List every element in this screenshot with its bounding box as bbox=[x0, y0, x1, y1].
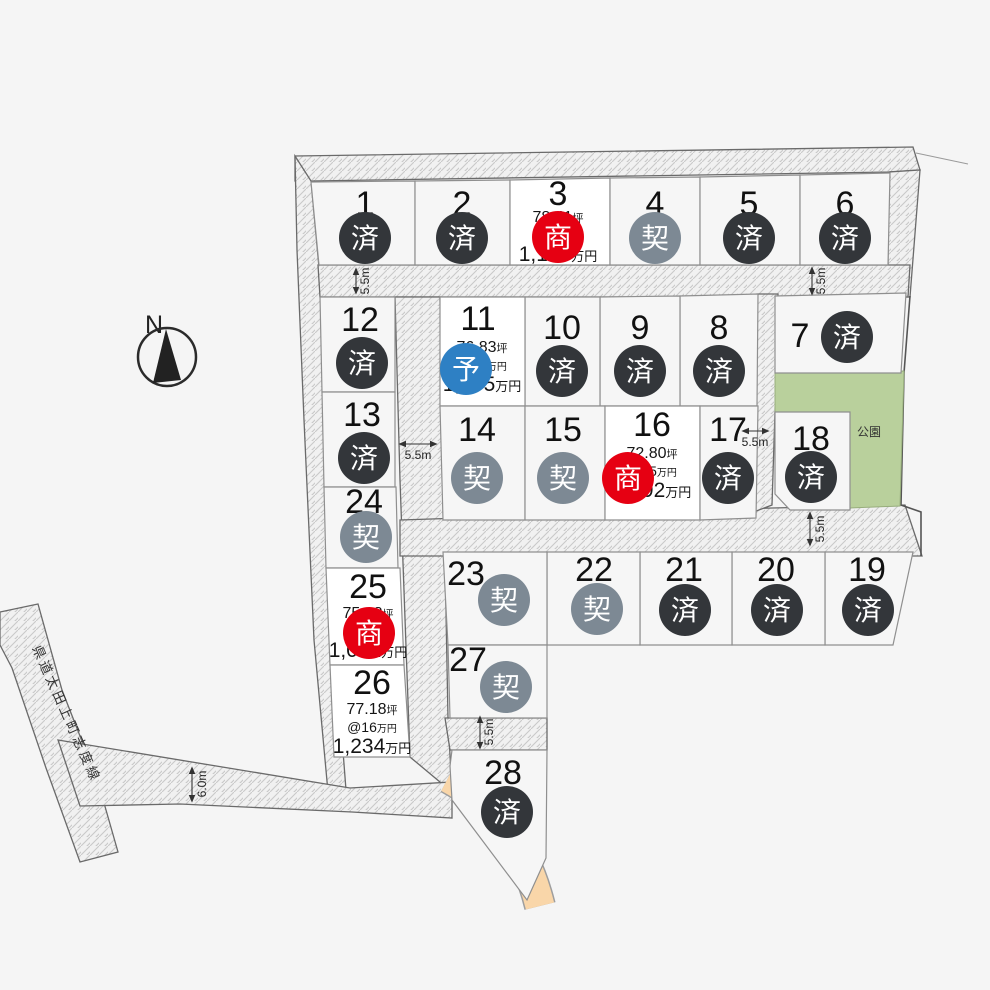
dim-label-below-18: 5.5m bbox=[813, 516, 827, 543]
lot-3[interactable]: 378.41坪@15万円1,176万円商 bbox=[510, 175, 610, 266]
lot-number: 25 bbox=[349, 568, 387, 606]
lot-number: 13 bbox=[343, 396, 381, 434]
status-badge-glyph: 契 bbox=[352, 522, 380, 553]
lot-number: 8 bbox=[710, 309, 729, 347]
status-badge-glyph: 契 bbox=[490, 585, 518, 616]
lot-28[interactable]: 28済 bbox=[450, 750, 547, 900]
lot-number: 23 bbox=[447, 555, 485, 593]
lot-number: 16 bbox=[633, 406, 671, 444]
lot-number: 28 bbox=[484, 754, 522, 792]
status-badge-glyph: 契 bbox=[641, 223, 669, 254]
lot-number: 12 bbox=[341, 301, 379, 339]
lot-number: 27 bbox=[449, 641, 487, 679]
lot-number: 14 bbox=[458, 411, 496, 449]
stray-line bbox=[916, 153, 968, 164]
road-between-27-28 bbox=[445, 718, 547, 750]
status-badge-glyph: 済 bbox=[735, 223, 763, 254]
lot-number: 9 bbox=[631, 309, 650, 347]
lot-26[interactable]: 2677.18坪@16万円1,234万円 bbox=[330, 664, 411, 758]
dim-label-27-28: 5.5m bbox=[482, 719, 496, 746]
lot-19[interactable]: 19済 bbox=[825, 551, 913, 645]
road-prefectural bbox=[0, 604, 118, 862]
status-badge-glyph: 済 bbox=[350, 443, 378, 474]
lot-number: 19 bbox=[848, 551, 886, 589]
lot-4[interactable]: 4契 bbox=[610, 177, 700, 265]
status-badge-glyph: 済 bbox=[548, 356, 576, 387]
site-plan-svg: 公園 1済 2済 378.41坪@15万円1,176万円商 4契 5済 6済 7… bbox=[0, 0, 990, 990]
status-badge-glyph: 予 bbox=[452, 354, 480, 385]
lot-10[interactable]: 10済 bbox=[525, 297, 600, 406]
status-badge-glyph: 済 bbox=[854, 595, 882, 626]
status-badge-glyph: 済 bbox=[833, 322, 861, 353]
lot-15[interactable]: 15契 bbox=[525, 406, 605, 520]
compass: N bbox=[138, 311, 196, 386]
status-badge-glyph: 商 bbox=[544, 222, 572, 253]
lot-23[interactable]: 23契 bbox=[443, 552, 547, 645]
lot-17[interactable]: 17済 bbox=[700, 406, 758, 520]
lot-number: 26 bbox=[353, 664, 391, 702]
status-badge-glyph: 契 bbox=[492, 672, 520, 703]
status-badge-glyph: 契 bbox=[549, 463, 577, 494]
lot-22[interactable]: 22契 bbox=[547, 551, 640, 645]
status-badge-glyph: 契 bbox=[463, 463, 491, 494]
lot-11[interactable]: 1176.83坪@14万円1,075万円予 bbox=[440, 297, 525, 406]
lot-8[interactable]: 8済 bbox=[680, 294, 758, 406]
lot-1[interactable]: 1済 bbox=[311, 181, 415, 265]
dim-label-mid-left: 5.5m bbox=[405, 448, 432, 462]
lot-number: 7 bbox=[791, 317, 810, 355]
lot-number: 11 bbox=[460, 300, 495, 338]
lot-number: 15 bbox=[544, 411, 582, 449]
lot-20[interactable]: 20済 bbox=[732, 551, 825, 645]
lot-number: 10 bbox=[543, 309, 581, 347]
lot-5[interactable]: 5済 bbox=[700, 175, 800, 265]
status-badge-glyph: 契 bbox=[583, 594, 611, 625]
status-badge-glyph: 済 bbox=[351, 223, 379, 254]
lot-2[interactable]: 2済 bbox=[415, 180, 510, 265]
lot-6[interactable]: 6済 bbox=[800, 173, 890, 265]
lot-21[interactable]: 21済 bbox=[640, 551, 732, 645]
lot-9[interactable]: 9済 bbox=[600, 296, 680, 406]
lot-25[interactable]: 2575.18坪@14万円1,052万円商 bbox=[326, 568, 407, 665]
lot-12[interactable]: 12済 bbox=[320, 297, 395, 392]
status-badge-glyph: 済 bbox=[705, 356, 733, 387]
lot-number: 3 bbox=[549, 175, 568, 213]
site-plan-map: 公園 1済 2済 378.41坪@15万円1,176万円商 4契 5済 6済 7… bbox=[0, 0, 990, 990]
status-badge-glyph: 済 bbox=[626, 356, 654, 387]
status-badge-glyph: 済 bbox=[493, 797, 521, 828]
status-badge-glyph: 済 bbox=[714, 463, 742, 494]
lot-16[interactable]: 1672.80坪@15万円1,092万円商 bbox=[602, 406, 700, 520]
status-badge-glyph: 済 bbox=[671, 595, 699, 626]
lot-14[interactable]: 14契 bbox=[440, 406, 525, 520]
dim-label-bottom-road: 6.0m bbox=[195, 771, 209, 798]
status-badge-glyph: 済 bbox=[448, 223, 476, 254]
status-badge-glyph: 商 bbox=[355, 618, 383, 649]
status-badge-glyph: 商 bbox=[614, 463, 642, 494]
status-badge-glyph: 済 bbox=[797, 462, 825, 493]
lot-7[interactable]: 7済 bbox=[775, 293, 906, 373]
dim-label-top-left: 5.5m bbox=[358, 268, 372, 295]
lot-number: 20 bbox=[757, 551, 795, 589]
lot-27[interactable]: 27契 bbox=[448, 641, 547, 718]
dim-label-mid-right: 5.5m bbox=[742, 435, 769, 449]
status-badge-glyph: 済 bbox=[763, 595, 791, 626]
lot-24[interactable]: 24契 bbox=[324, 483, 398, 568]
dim-label-top-right: 5.5m bbox=[814, 268, 828, 295]
lot-13[interactable]: 13済 bbox=[322, 392, 395, 487]
park-label: 公園 bbox=[857, 425, 881, 439]
status-badge-glyph: 済 bbox=[831, 223, 859, 254]
lot-number: 21 bbox=[665, 551, 703, 589]
lot-18[interactable]: 18済 bbox=[775, 412, 850, 510]
status-badge-glyph: 済 bbox=[348, 348, 376, 379]
